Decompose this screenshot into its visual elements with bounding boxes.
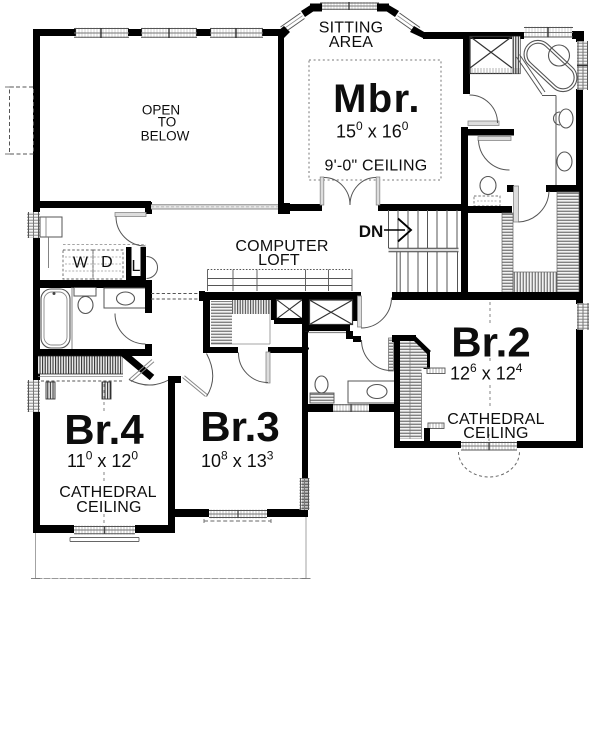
svg-text:110 x 120: 110 x 120 xyxy=(67,449,138,472)
svg-text:126 x 124: 126 x 124 xyxy=(450,361,523,384)
svg-text:BELOW: BELOW xyxy=(141,129,190,144)
svg-text:108 x 133: 108 x 133 xyxy=(201,449,274,472)
svg-text:Br.2: Br.2 xyxy=(451,319,530,366)
svg-text:DN: DN xyxy=(359,222,384,241)
svg-text:9'-0" CEILING: 9'-0" CEILING xyxy=(325,158,428,175)
svg-text:Mbr.: Mbr. xyxy=(333,77,421,121)
svg-text:Br.4: Br.4 xyxy=(64,406,144,453)
svg-text:150 x 160: 150 x 160 xyxy=(336,119,409,142)
svg-text:CEILING: CEILING xyxy=(76,499,141,516)
svg-text:Br.3: Br.3 xyxy=(200,403,279,450)
svg-text:W: W xyxy=(73,255,89,272)
svg-text:LOFT: LOFT xyxy=(258,252,300,269)
svg-text:TO: TO xyxy=(158,115,177,130)
svg-text:AREA: AREA xyxy=(329,34,373,51)
svg-text:L: L xyxy=(131,258,140,275)
svg-text:CEILING: CEILING xyxy=(463,425,528,442)
svg-text:D: D xyxy=(101,254,113,271)
